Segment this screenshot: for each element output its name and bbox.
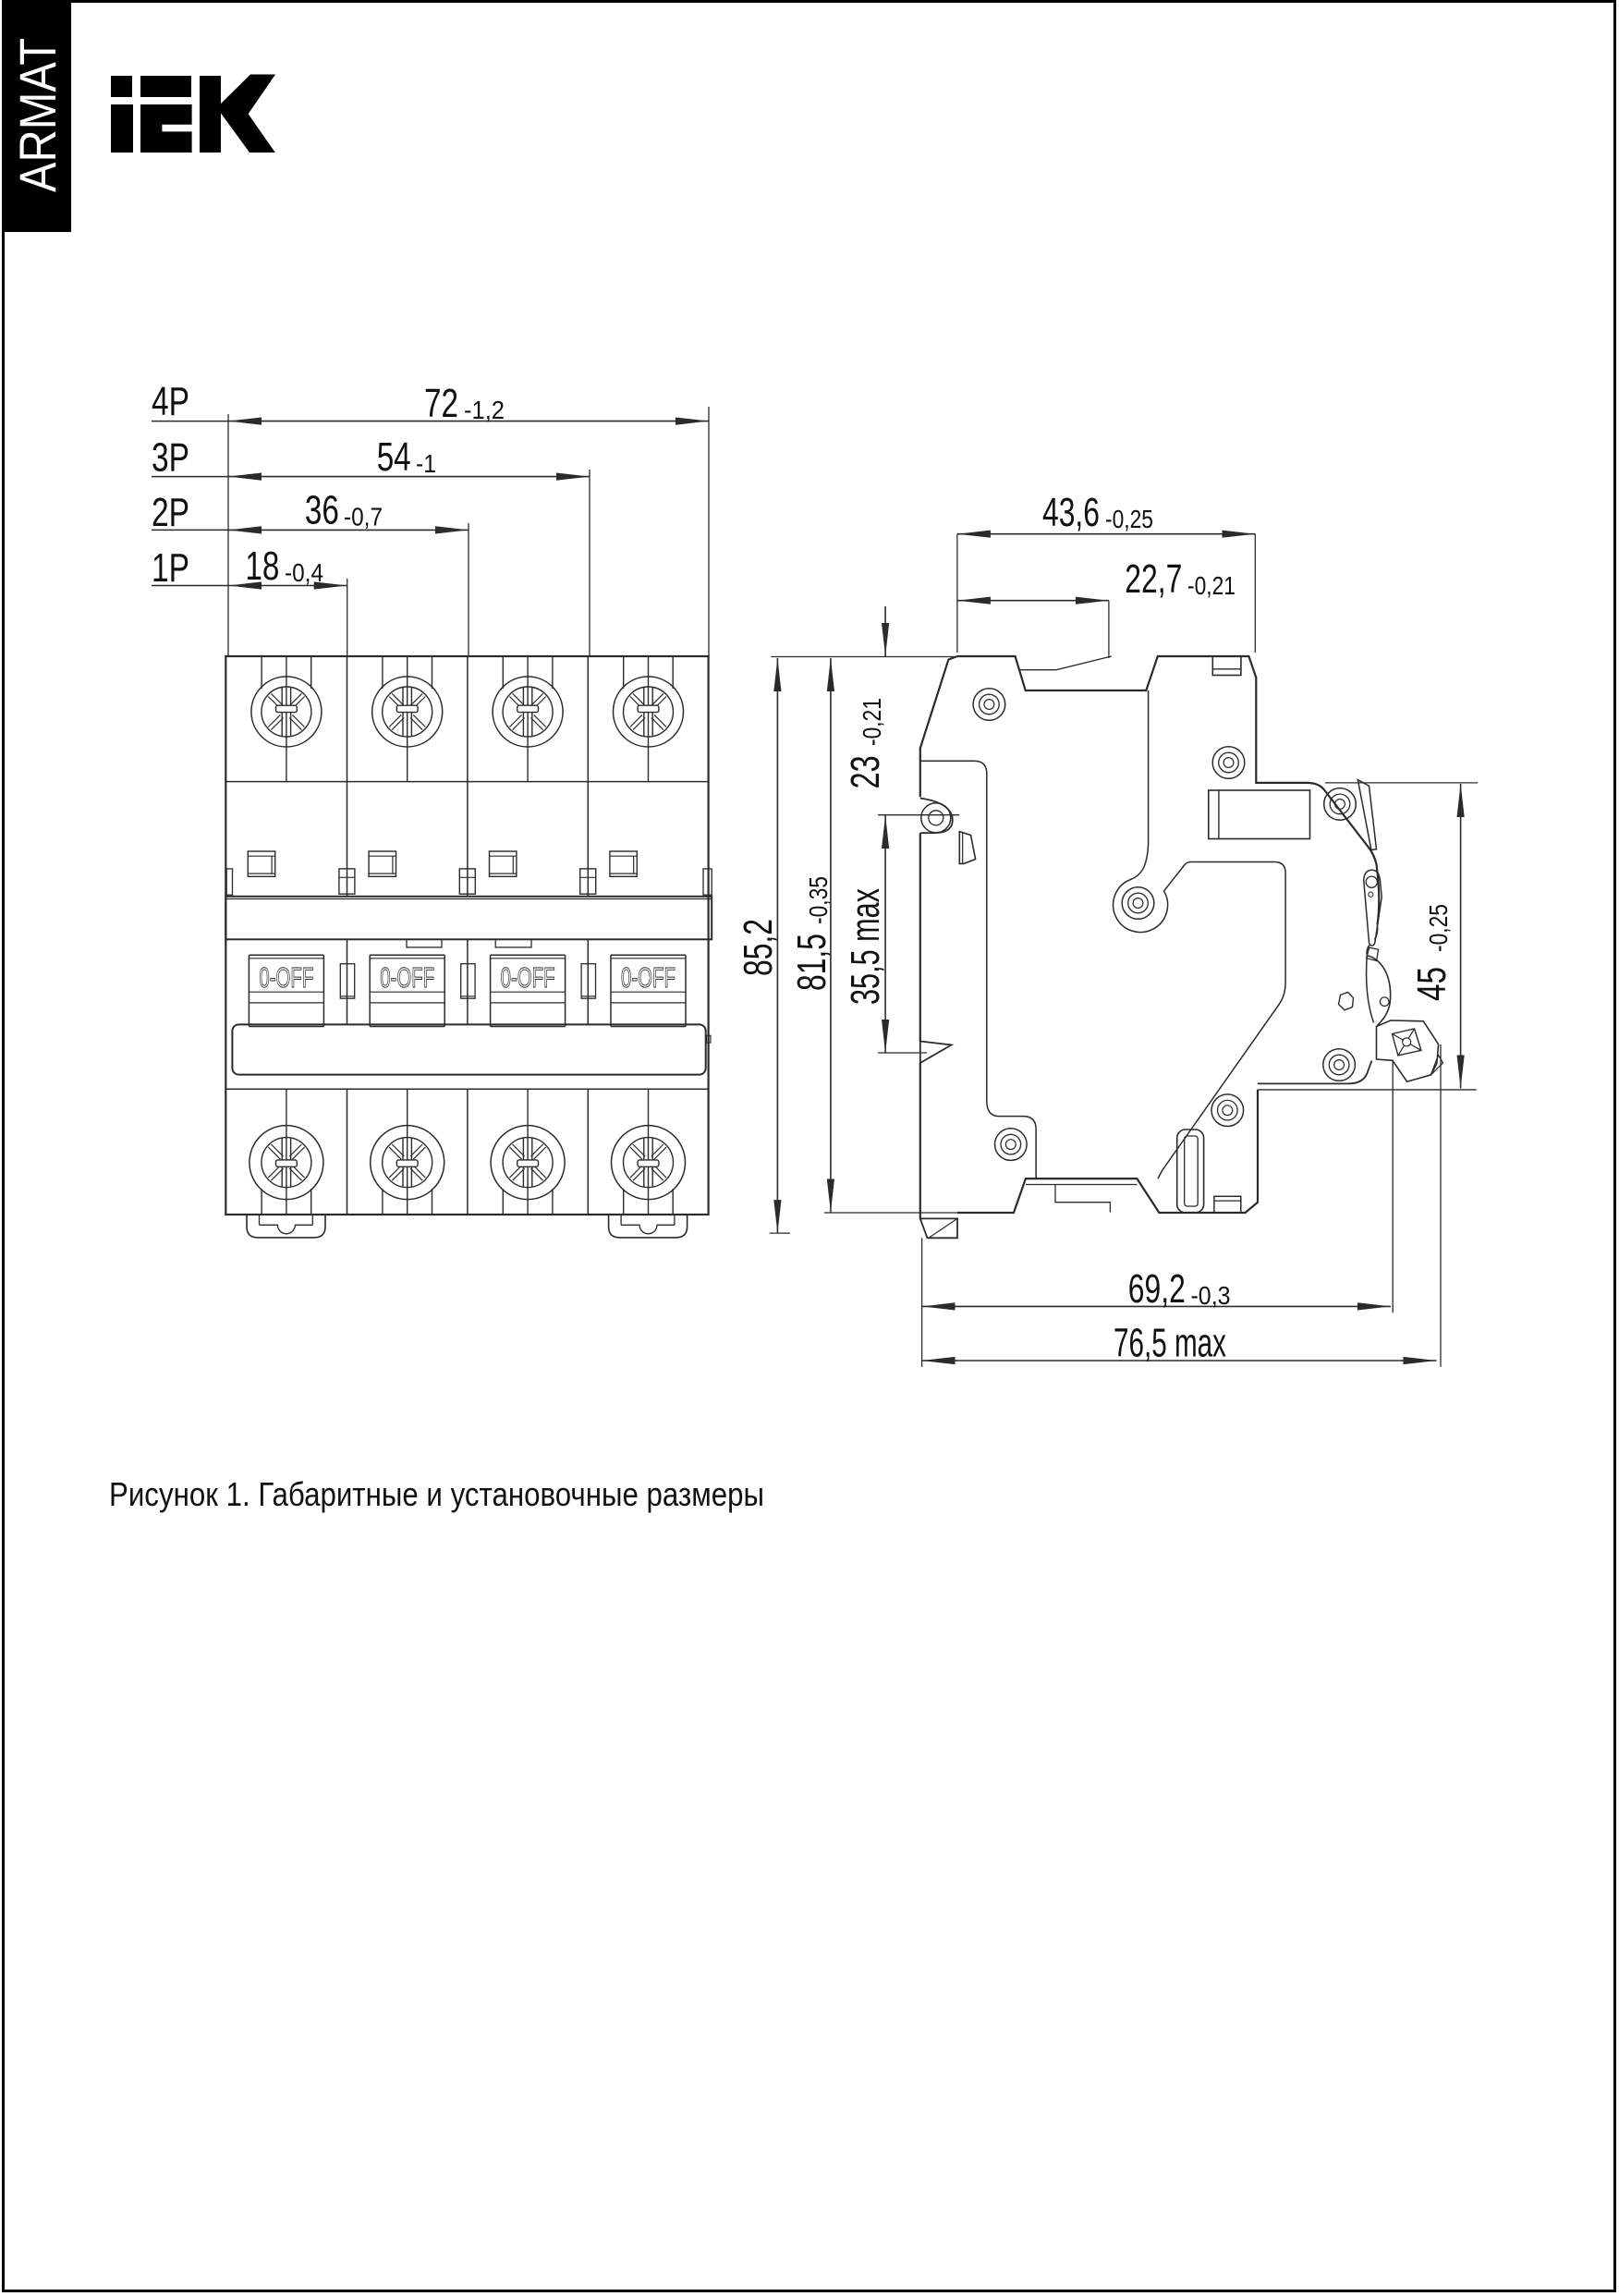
svg-text:-0,25: -0,25	[1424, 904, 1453, 952]
svg-text:36: 36	[305, 488, 339, 533]
svg-text:72: 72	[424, 381, 458, 426]
svg-text:2P: 2P	[152, 490, 189, 535]
svg-text:-0,21: -0,21	[1187, 571, 1236, 600]
svg-text:0-OFF: 0-OFF	[380, 961, 434, 994]
svg-text:23: 23	[843, 755, 888, 788]
svg-text:0-OFF: 0-OFF	[621, 961, 676, 994]
svg-text:-0,3: -0,3	[1191, 1281, 1231, 1310]
svg-text:-0,4: -0,4	[285, 558, 323, 587]
svg-text:0-OFF: 0-OFF	[501, 961, 555, 994]
svg-text:-0,7: -0,7	[344, 503, 383, 531]
svg-text:3P: 3P	[152, 435, 189, 481]
svg-text:43,6: 43,6	[1042, 490, 1100, 535]
svg-text:22,7: 22,7	[1125, 556, 1182, 602]
svg-text:-0,21: -0,21	[858, 698, 886, 746]
svg-text:35,5 max: 35,5 max	[843, 888, 888, 1005]
svg-text:69,2: 69,2	[1128, 1266, 1186, 1312]
svg-text:81,5: 81,5	[789, 934, 834, 991]
svg-text:85,2: 85,2	[736, 919, 781, 976]
svg-text:54: 54	[377, 434, 411, 480]
svg-text:-1,2: -1,2	[464, 396, 505, 424]
svg-text:-1: -1	[416, 449, 436, 478]
svg-text:Рисунок 1. Габаритные и устано: Рисунок 1. Габаритные и установочные раз…	[109, 1475, 764, 1513]
svg-text:ARMAT: ARMAT	[8, 38, 67, 192]
svg-text:-0,25: -0,25	[1105, 505, 1153, 533]
svg-text:18: 18	[245, 543, 279, 589]
svg-text:45: 45	[1409, 967, 1455, 1001]
svg-text:4P: 4P	[152, 379, 189, 424]
svg-text:-0,35: -0,35	[804, 876, 833, 924]
svg-text:0-OFF: 0-OFF	[259, 961, 313, 994]
svg-text:76,5 max: 76,5 max	[1114, 1321, 1226, 1366]
svg-text:1P: 1P	[152, 545, 189, 591]
